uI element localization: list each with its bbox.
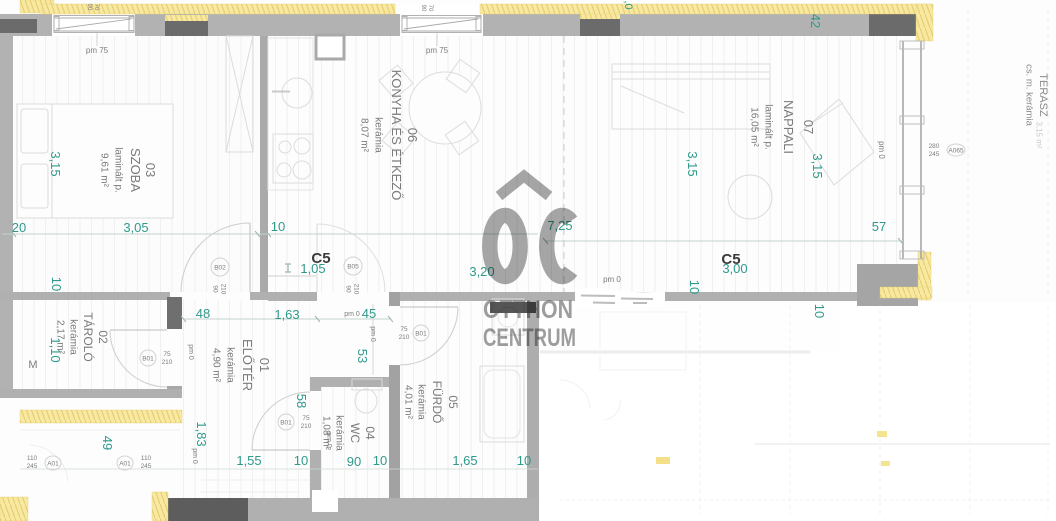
svg-text:pm 75: pm 75 [86, 46, 109, 55]
svg-text:3,15: 3,15 [685, 151, 700, 176]
svg-text:4,01 m²: 4,01 m² [403, 385, 414, 420]
svg-text:49: 49 [100, 436, 115, 450]
svg-text:pm 0: pm 0 [603, 275, 621, 284]
svg-text:1,63: 1,63 [274, 307, 299, 322]
svg-text:kerámia: kerámia [225, 347, 236, 383]
svg-text:SZOBA: SZOBA [128, 148, 143, 192]
svg-text:42: 42 [808, 14, 823, 28]
svg-text:3,15: 3,15 [810, 153, 825, 178]
svg-text:05: 05 [446, 395, 460, 409]
svg-text:cs. m. kerámia: cs. m. kerámia [1024, 64, 1035, 126]
svg-text:75: 75 [163, 351, 171, 358]
svg-text:kerámia: kerámia [68, 319, 79, 355]
svg-text:8,07 m²: 8,07 m² [359, 118, 370, 153]
svg-text:245: 245 [929, 151, 940, 158]
svg-text:kerámia: kerámia [416, 384, 427, 420]
svg-text:NAPPALI: NAPPALI [781, 100, 796, 154]
svg-text:90: 90 [420, 5, 426, 12]
svg-text:48: 48 [196, 306, 210, 321]
svg-text:KONYHA ÉS ÉTKEZŐ: KONYHA ÉS ÉTKEZŐ [389, 70, 404, 201]
svg-text:53: 53 [355, 349, 370, 363]
svg-text:B01: B01 [415, 331, 427, 338]
svg-text:2,17 m²: 2,17 m² [55, 320, 66, 355]
svg-text:pm 0: pm 0 [369, 326, 376, 342]
svg-text:kerámia: kerámia [334, 415, 345, 451]
svg-text:9,61 m²: 9,61 m² [99, 153, 110, 188]
svg-text:3,15: 3,15 [48, 151, 63, 176]
svg-text:03: 03 [143, 163, 158, 177]
svg-text:C5: C5 [311, 250, 330, 267]
svg-text:ELŐTÉR: ELŐTÉR [240, 339, 255, 391]
svg-text:TÁROLÓ: TÁROLÓ [81, 312, 96, 361]
svg-text:B05: B05 [347, 264, 359, 271]
svg-text:04: 04 [363, 426, 377, 440]
svg-text:75: 75 [400, 326, 408, 333]
svg-text:210: 210 [399, 334, 410, 341]
svg-text:210: 210 [301, 423, 312, 430]
svg-text:10: 10 [294, 453, 308, 468]
svg-text:10: 10 [687, 280, 702, 294]
svg-text:20: 20 [12, 220, 26, 235]
svg-text:C5: C5 [721, 251, 740, 268]
svg-text:pm 75: pm 75 [426, 46, 449, 55]
svg-text:,0: ,0 [622, 0, 634, 9]
svg-text:10: 10 [517, 453, 531, 468]
svg-text:01: 01 [257, 358, 272, 372]
svg-text:pm 0: pm 0 [187, 344, 194, 360]
svg-text:laminált p.: laminált p. [113, 147, 124, 193]
svg-text:280: 280 [929, 143, 940, 150]
svg-text:pm 0: pm 0 [877, 141, 886, 159]
svg-text:45: 45 [362, 306, 376, 321]
svg-text:A065: A065 [948, 148, 964, 155]
svg-text:10: 10 [812, 304, 827, 318]
svg-text:10: 10 [373, 453, 387, 468]
svg-text:pm 0: pm 0 [344, 311, 360, 318]
svg-text:210: 210 [162, 359, 173, 366]
svg-text:B01: B01 [280, 420, 292, 427]
svg-text:110: 110 [27, 455, 38, 462]
svg-text:16,05 m²: 16,05 m² [749, 107, 760, 147]
svg-text:70: 70 [93, 4, 99, 11]
svg-text:kerámia: kerámia [373, 117, 384, 153]
svg-text:1,55: 1,55 [236, 453, 261, 468]
svg-text:B01: B01 [142, 356, 154, 363]
svg-text:245: 245 [141, 463, 152, 470]
svg-text:B02: B02 [214, 265, 226, 272]
svg-text:90: 90 [347, 454, 361, 469]
svg-text:TERASZ: TERASZ [1037, 73, 1049, 117]
svg-text:02: 02 [96, 330, 110, 344]
svg-text:1,65: 1,65 [452, 453, 477, 468]
svg-text:FÜRDŐ: FÜRDŐ [430, 381, 445, 424]
svg-text:1,08 m²: 1,08 m² [321, 416, 332, 451]
svg-text:75: 75 [302, 415, 310, 422]
svg-text:WC: WC [348, 423, 362, 443]
svg-text:70: 70 [427, 5, 433, 12]
svg-text:90: 90 [345, 285, 352, 293]
svg-text:57: 57 [872, 219, 886, 234]
svg-text:pm 0: pm 0 [191, 448, 198, 464]
svg-text:210: 210 [353, 284, 360, 295]
svg-text:07: 07 [801, 120, 816, 134]
svg-text:laminált p.: laminált p. [763, 104, 774, 150]
svg-text:4,90 m²: 4,90 m² [211, 348, 222, 383]
svg-text:10: 10 [49, 277, 64, 291]
svg-text:CENTRUM: CENTRUM [483, 324, 576, 352]
svg-text:90: 90 [212, 285, 219, 293]
svg-text:110: 110 [141, 455, 152, 462]
svg-text:245: 245 [27, 463, 38, 470]
svg-text:210: 210 [220, 284, 227, 295]
svg-text:3,15 m²: 3,15 m² [1035, 121, 1044, 148]
svg-text:A01: A01 [47, 461, 59, 468]
svg-text:06: 06 [405, 128, 420, 142]
svg-text:1,83: 1,83 [194, 421, 209, 446]
svg-text:90: 90 [86, 4, 92, 11]
svg-text:A01: A01 [119, 461, 131, 468]
svg-text:3,05: 3,05 [123, 220, 148, 235]
svg-text:58: 58 [294, 394, 309, 408]
svg-text:M: M [28, 359, 37, 371]
svg-text:10: 10 [271, 219, 285, 234]
